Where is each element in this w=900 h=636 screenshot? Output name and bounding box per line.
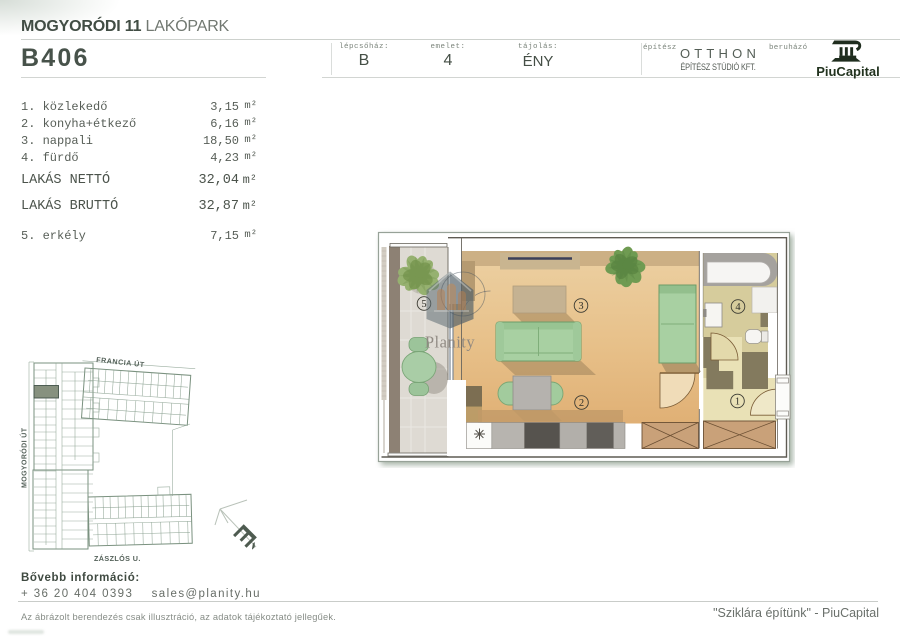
svg-text:1: 1 <box>735 397 740 408</box>
svg-text:3: 3 <box>578 301 583 312</box>
svg-text:2: 2 <box>579 398 584 409</box>
svg-text:ZÁSZLÓS U.: ZÁSZLÓS U. <box>94 554 141 563</box>
svg-text:Planity: Planity <box>425 333 476 352</box>
svg-text:5: 5 <box>421 299 426 310</box>
svg-text:MOGYORÓDI ÚT: MOGYORÓDI ÚT <box>20 427 29 488</box>
svg-text:FRANCIA ÚT: FRANCIA ÚT <box>96 355 145 369</box>
svg-text:4: 4 <box>735 302 741 313</box>
svg-text:É: É <box>228 519 263 554</box>
